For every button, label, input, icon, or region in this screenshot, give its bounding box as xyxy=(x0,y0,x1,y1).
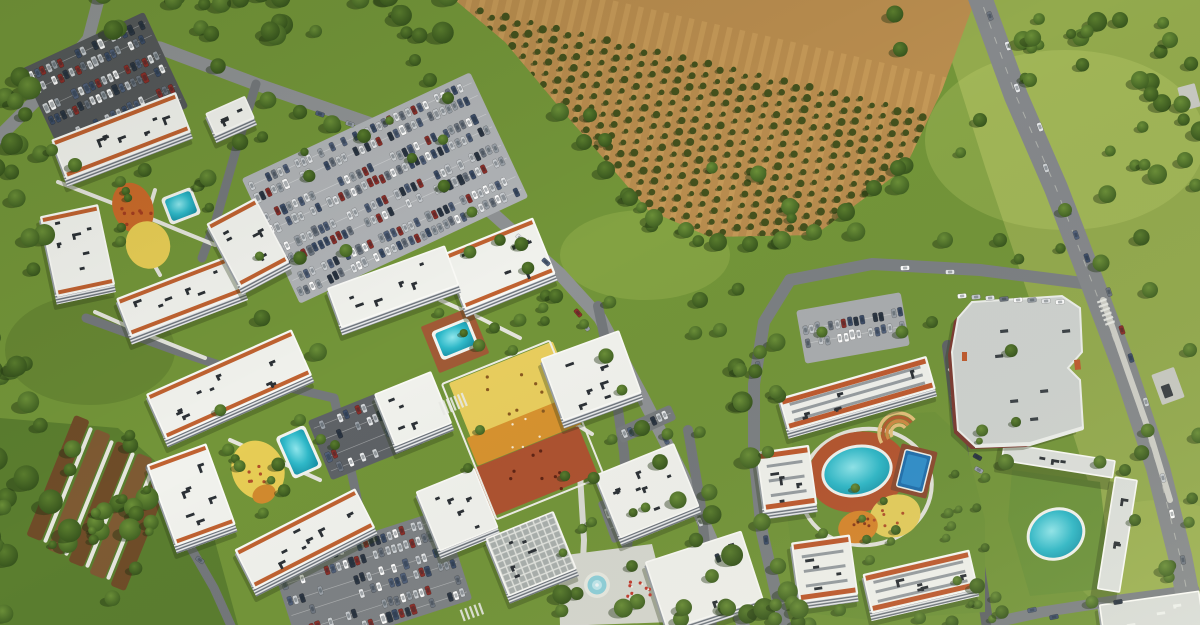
aerial-site-plan xyxy=(0,0,1200,625)
aerial-masterplan-render xyxy=(0,0,1200,625)
lighting-overlay xyxy=(0,0,1200,625)
